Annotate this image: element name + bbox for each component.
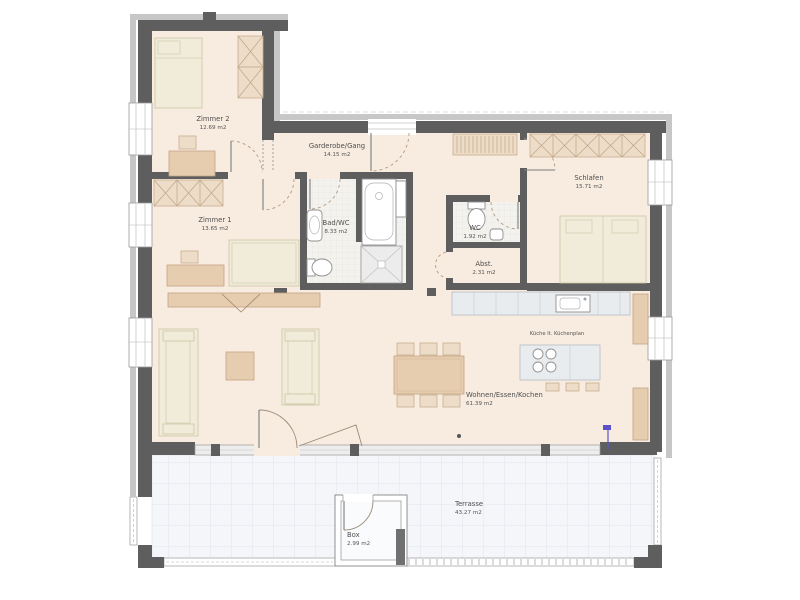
box-equipment	[396, 529, 405, 565]
floorplan-canvas: Zimmer 2 12.69 m2 Garderobe/Gang 14.15 m…	[0, 0, 800, 600]
label-terrasse-name: Terrasse	[454, 500, 483, 508]
sofa-left	[159, 329, 198, 436]
chair-zimmer1	[181, 251, 198, 263]
label-bad-name: Bad/WC	[323, 219, 350, 227]
dining-chair	[443, 343, 460, 355]
window-zimmer1	[129, 203, 152, 247]
dining-table	[394, 356, 464, 394]
window-schlafen	[648, 160, 672, 205]
wardrobe-schlafen	[530, 134, 645, 157]
dining-chair	[443, 395, 460, 407]
kitchen-island	[520, 345, 600, 380]
dining-chair	[397, 343, 414, 355]
shower	[361, 246, 402, 283]
bathtub	[362, 179, 396, 245]
door-handle-dot	[457, 434, 461, 438]
desk-zimmer1	[167, 265, 224, 286]
coat-rack	[453, 134, 517, 155]
dining-chair	[420, 343, 437, 355]
terrace-box	[335, 494, 407, 566]
terrace-railing-bottom-left	[164, 558, 335, 566]
desk-zimmer2	[169, 151, 215, 176]
kitchen-counter	[452, 292, 630, 315]
window-wohnen	[129, 318, 152, 367]
label-wohnen-name: Wohnen/Essen/Kochen	[466, 391, 543, 399]
sofa-right	[282, 329, 319, 405]
floorplan-svg: Zimmer 2 12.69 m2 Garderobe/Gang 14.15 m…	[0, 0, 800, 600]
label-wc-name: WC	[469, 224, 481, 232]
bed-schlafen	[560, 216, 646, 283]
label-schlafen-name: Schlafen	[574, 174, 603, 182]
label-garderobe-name: Garderobe/Gang	[309, 142, 365, 150]
label-zimmer1-name: Zimmer 1	[198, 216, 231, 224]
dining-chair	[420, 395, 437, 407]
label-box-area: 2.99 m2	[347, 541, 370, 547]
label-wohnen-area: 61.39 m2	[466, 401, 493, 407]
label-terrasse-area: 43.27 m2	[455, 510, 482, 516]
toilet-bad	[307, 259, 332, 276]
island-stools	[546, 383, 599, 391]
label-bad-area: 8.33 m2	[324, 229, 347, 235]
label-wc-area: 1.92 m2	[463, 234, 486, 240]
label-garderobe-area: 14.15 m2	[324, 152, 351, 158]
kitchen-tall-cabinet-lower	[633, 388, 648, 440]
washbasin-wc	[490, 229, 503, 240]
chair-zimmer2	[179, 136, 196, 149]
label-shower-size: Du 110/100	[368, 285, 395, 291]
label-abst-area: 2.31 m2	[472, 270, 495, 276]
window-kueche	[648, 317, 672, 360]
bath-cabinet	[396, 181, 406, 217]
window-zimmer2	[129, 103, 152, 155]
kitchen-tall-cabinet-upper	[633, 294, 648, 344]
label-kitchen-note: Küche lt. Küchenplan	[530, 331, 584, 337]
label-zimmer2-area: 12.69 m2	[200, 125, 227, 131]
label-zimmer2-name: Zimmer 2	[196, 115, 229, 123]
wardrobe-zimmer2	[238, 36, 263, 98]
label-box-name: Box	[347, 531, 360, 539]
washbasin-bad	[307, 210, 322, 241]
label-schlafen-area: 15.71 m2	[576, 184, 603, 190]
bed-zimmer2	[155, 38, 202, 108]
label-zimmer1-area: 13.65 m2	[202, 226, 229, 232]
coffee-table	[226, 352, 254, 380]
dining-set	[394, 343, 464, 407]
label-abst-name: Abst.	[475, 260, 492, 268]
bed-zimmer1	[229, 240, 299, 286]
wardrobe-zimmer1	[154, 180, 223, 206]
dining-chair	[397, 395, 414, 407]
